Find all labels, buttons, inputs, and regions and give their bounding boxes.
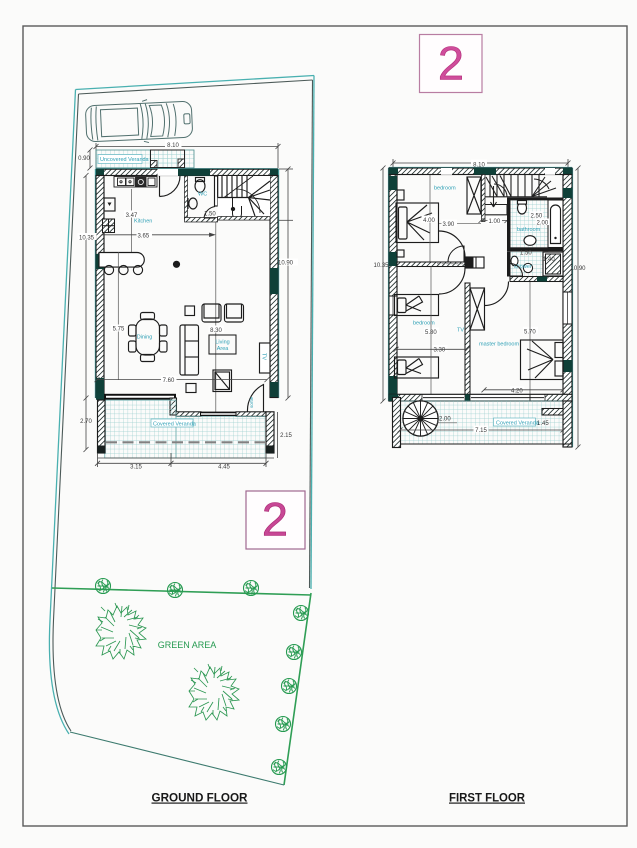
svg-text:2.70: 2.70 [80,419,92,425]
svg-text:Covered Veranda: Covered Veranda [496,421,540,427]
svg-text:Area: Area [217,346,230,352]
svg-text:2.50: 2.50 [531,213,543,219]
svg-text:master bedroom: master bedroom [479,342,519,348]
svg-text:bedroom: bedroom [434,186,456,192]
svg-text:2.00: 2.00 [537,221,549,227]
svg-text:Dining: Dining [137,335,153,341]
svg-text:Uncovered Veranda: Uncovered Veranda [100,157,150,163]
svg-text:GREEN AREA: GREEN AREA [158,640,217,650]
svg-text:4.00: 4.00 [423,218,435,224]
svg-text:bathroom: bathroom [517,227,541,233]
svg-text:4.20: 4.20 [511,388,523,394]
svg-text:5.75: 5.75 [113,327,125,333]
svg-text:1.40: 1.40 [543,257,555,263]
svg-text:8.10: 8.10 [167,143,179,149]
svg-text:2.00: 2.00 [439,417,451,423]
svg-text:3.65: 3.65 [138,234,150,240]
svg-text:Living: Living [215,340,229,346]
svg-text:10.35: 10.35 [373,263,389,269]
svg-text:7.15: 7.15 [475,428,487,434]
svg-text:Kitchen: Kitchen [134,219,152,225]
svg-text:8.30: 8.30 [210,328,222,334]
svg-text:2: 2 [262,493,288,546]
svg-text:Covered Veranda: Covered Veranda [153,422,197,428]
svg-text:1.50: 1.50 [204,212,216,218]
svg-text:TV: TV [261,353,267,360]
svg-text:TV: TV [457,328,464,334]
svg-text:3.15: 3.15 [130,465,142,471]
svg-text:2.15: 2.15 [280,433,292,439]
svg-text:0.90: 0.90 [78,156,90,162]
svg-text:WC: WC [198,192,207,198]
svg-text:4.45: 4.45 [218,465,230,471]
svg-text:3.30: 3.30 [434,347,446,353]
svg-text:10.90: 10.90 [278,261,294,267]
svg-text:sortie: sortie [249,396,254,408]
svg-text:10.35: 10.35 [79,236,95,242]
svg-text:2: 2 [438,37,464,90]
svg-text:7.60: 7.60 [163,378,175,384]
svg-text:1.00: 1.00 [489,219,501,225]
svg-text:bedroom: bedroom [413,321,435,327]
svg-text:FIRST FLOOR: FIRST FLOOR [449,791,525,805]
svg-text:3.90: 3.90 [443,222,455,228]
svg-text:GROUND FLOOR: GROUND FLOOR [152,791,248,805]
svg-text:1.50: 1.50 [520,251,532,257]
svg-text:1.45: 1.45 [537,421,549,427]
svg-text:10.90: 10.90 [570,266,586,272]
